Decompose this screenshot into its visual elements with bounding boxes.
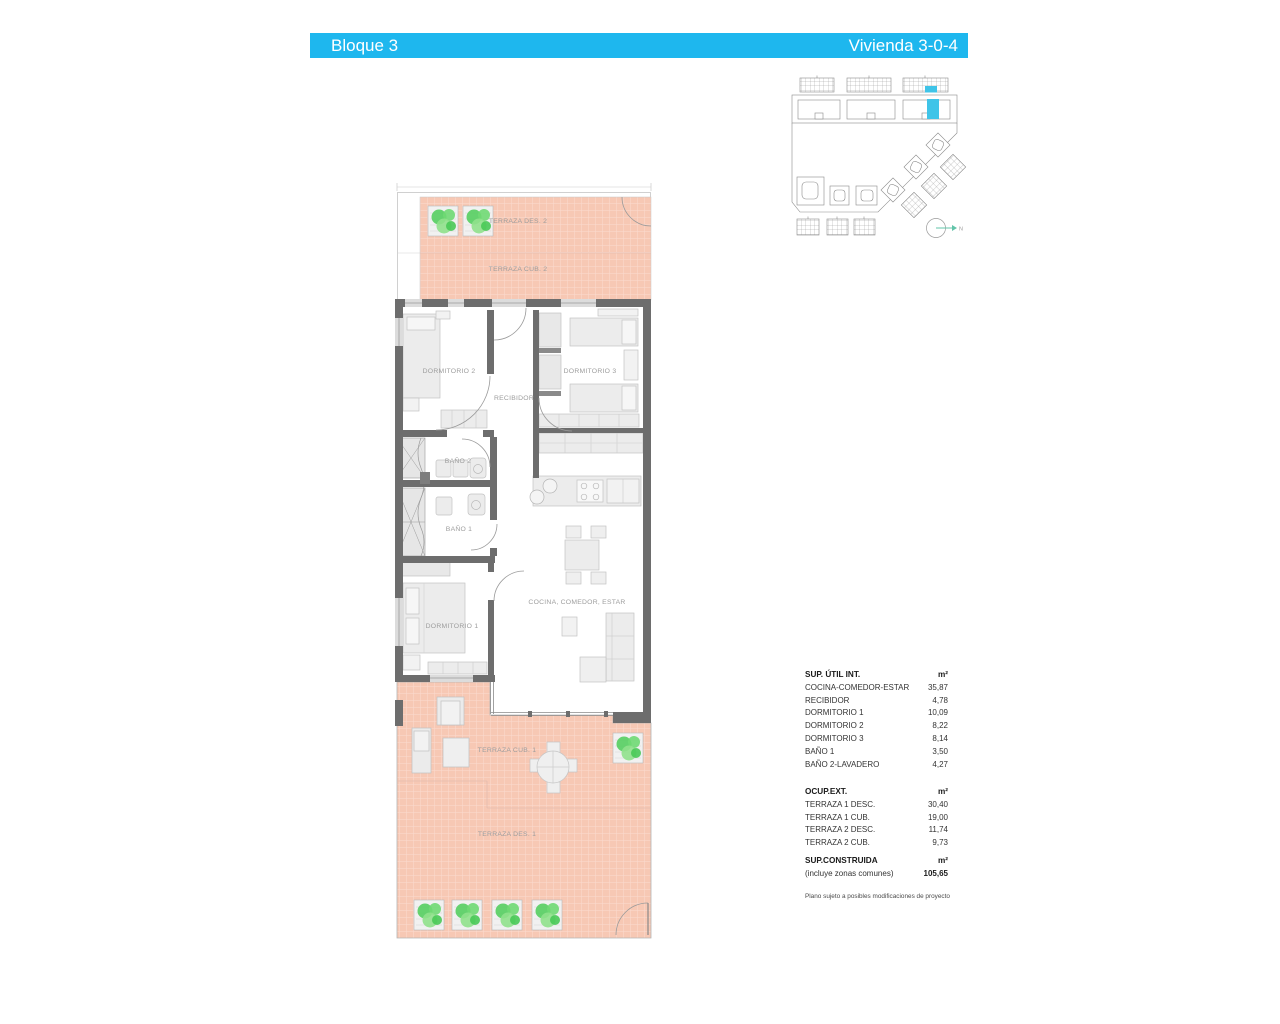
terrace-2: TERRAZA DES. 2 TERRAZA CUB. 2 xyxy=(397,193,651,301)
table-row: (incluye zonas comunes) 105,65 xyxy=(805,868,948,881)
table-row: DORMITORIO 110,09 xyxy=(805,707,948,720)
room-label: TERRAZA DES. 1 xyxy=(478,831,536,838)
table-row: DORMITORIO 38,14 xyxy=(805,733,948,746)
room-label: BAÑO 1 xyxy=(446,524,472,533)
unit-title: Vivienda 3-0-4 xyxy=(849,36,958,56)
room-label: BAÑO 2 xyxy=(445,456,471,465)
table-header: SUP. ÚTIL INT. m² xyxy=(805,669,948,682)
table-unit: m² xyxy=(938,786,948,799)
highlighted-unit xyxy=(925,86,939,119)
table-title: OCUP.EXT. xyxy=(805,786,847,799)
table-row: TERRAZA 2 CUB.9,73 xyxy=(805,837,948,850)
plant-icon xyxy=(414,900,444,930)
plan-sheet: Bloque 3 Vivienda 3-0-4 xyxy=(0,0,1280,1024)
title-bar: Bloque 3 Vivienda 3-0-4 xyxy=(310,33,968,58)
room-label: DORMITORIO 1 xyxy=(426,623,479,630)
table-row: RECIBIDOR4,78 xyxy=(805,695,948,708)
terrace-1: TERRAZA CUB. 1 TERRAZA DES. 1 xyxy=(397,682,651,938)
table-row: BAÑO 2-LAVADERO4,27 xyxy=(805,759,948,772)
north-label: N xyxy=(959,227,963,233)
table-row: BAÑO 13,50 xyxy=(805,746,948,759)
dimension-lines xyxy=(397,183,651,191)
site-plan: N xyxy=(780,75,980,250)
exterior-areas-table: OCUP.EXT. m² TERRAZA 1 DESC.30,40 TERRAZ… xyxy=(805,786,948,850)
room-label: COCINA, COMEDOR, ESTAR xyxy=(528,599,625,606)
table-header: OCUP.EXT. m² xyxy=(805,786,948,799)
room-label: TERRAZA DES. 2 xyxy=(489,218,547,225)
room-label: DORMITORIO 3 xyxy=(564,368,617,375)
table-header: SUP.CONSTRUIDA m² xyxy=(805,855,948,868)
plant-icon xyxy=(428,206,458,236)
room-label: TERRAZA CUB. 2 xyxy=(489,266,548,273)
table-unit: m² xyxy=(938,855,948,868)
table-unit: m² xyxy=(938,669,948,682)
room-label: RECIBIDOR xyxy=(494,395,534,402)
plant-icon xyxy=(452,900,482,930)
room-label: TERRAZA CUB. 1 xyxy=(478,747,537,754)
table-row: COCINA-COMEDOR-ESTAR35,87 xyxy=(805,682,948,695)
disclaimer-note: Plano sujeto a posibles modificaciones d… xyxy=(805,893,965,900)
table-row: TERRAZA 1 CUB.19,00 xyxy=(805,812,948,825)
table-row: DORMITORIO 28,22 xyxy=(805,720,948,733)
table-title: SUP. ÚTIL INT. xyxy=(805,669,860,682)
north-arrow-icon: N xyxy=(927,219,964,238)
table-title: SUP.CONSTRUIDA xyxy=(805,855,878,868)
block-title: Bloque 3 xyxy=(331,36,398,56)
interior-areas-table: SUP. ÚTIL INT. m² COCINA-COMEDOR-ESTAR35… xyxy=(805,669,948,771)
plant-icon xyxy=(492,900,522,930)
floor-plan: TERRAZA DES. 2 TERRAZA CUB. 2 xyxy=(390,183,670,945)
built-area-table: SUP.CONSTRUIDA m² (incluye zonas comunes… xyxy=(805,855,948,881)
plant-icon xyxy=(613,733,643,763)
plant-icon xyxy=(532,900,562,930)
table-row: TERRAZA 1 DESC.30,40 xyxy=(805,799,948,812)
table-row: TERRAZA 2 DESC.11,74 xyxy=(805,824,948,837)
room-label: DORMITORIO 2 xyxy=(423,368,476,375)
